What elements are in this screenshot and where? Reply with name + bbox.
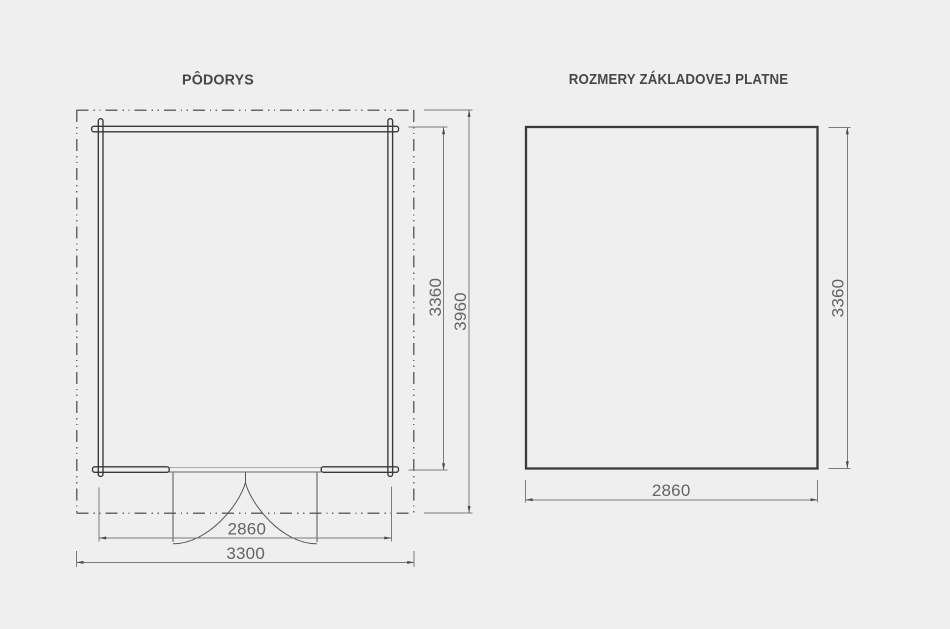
svg-text:ROZMERY ZÁKLADOVEJ PLATNE: ROZMERY ZÁKLADOVEJ PLATNE [569, 70, 789, 88]
svg-text:3360: 3360 [828, 279, 847, 318]
svg-text:2860: 2860 [652, 481, 691, 500]
svg-text:PÔDORYS: PÔDORYS [182, 70, 254, 88]
svg-text:3960: 3960 [451, 292, 470, 331]
svg-text:3360: 3360 [426, 278, 445, 317]
svg-text:2860: 2860 [227, 520, 266, 539]
svg-text:3300: 3300 [226, 544, 265, 563]
